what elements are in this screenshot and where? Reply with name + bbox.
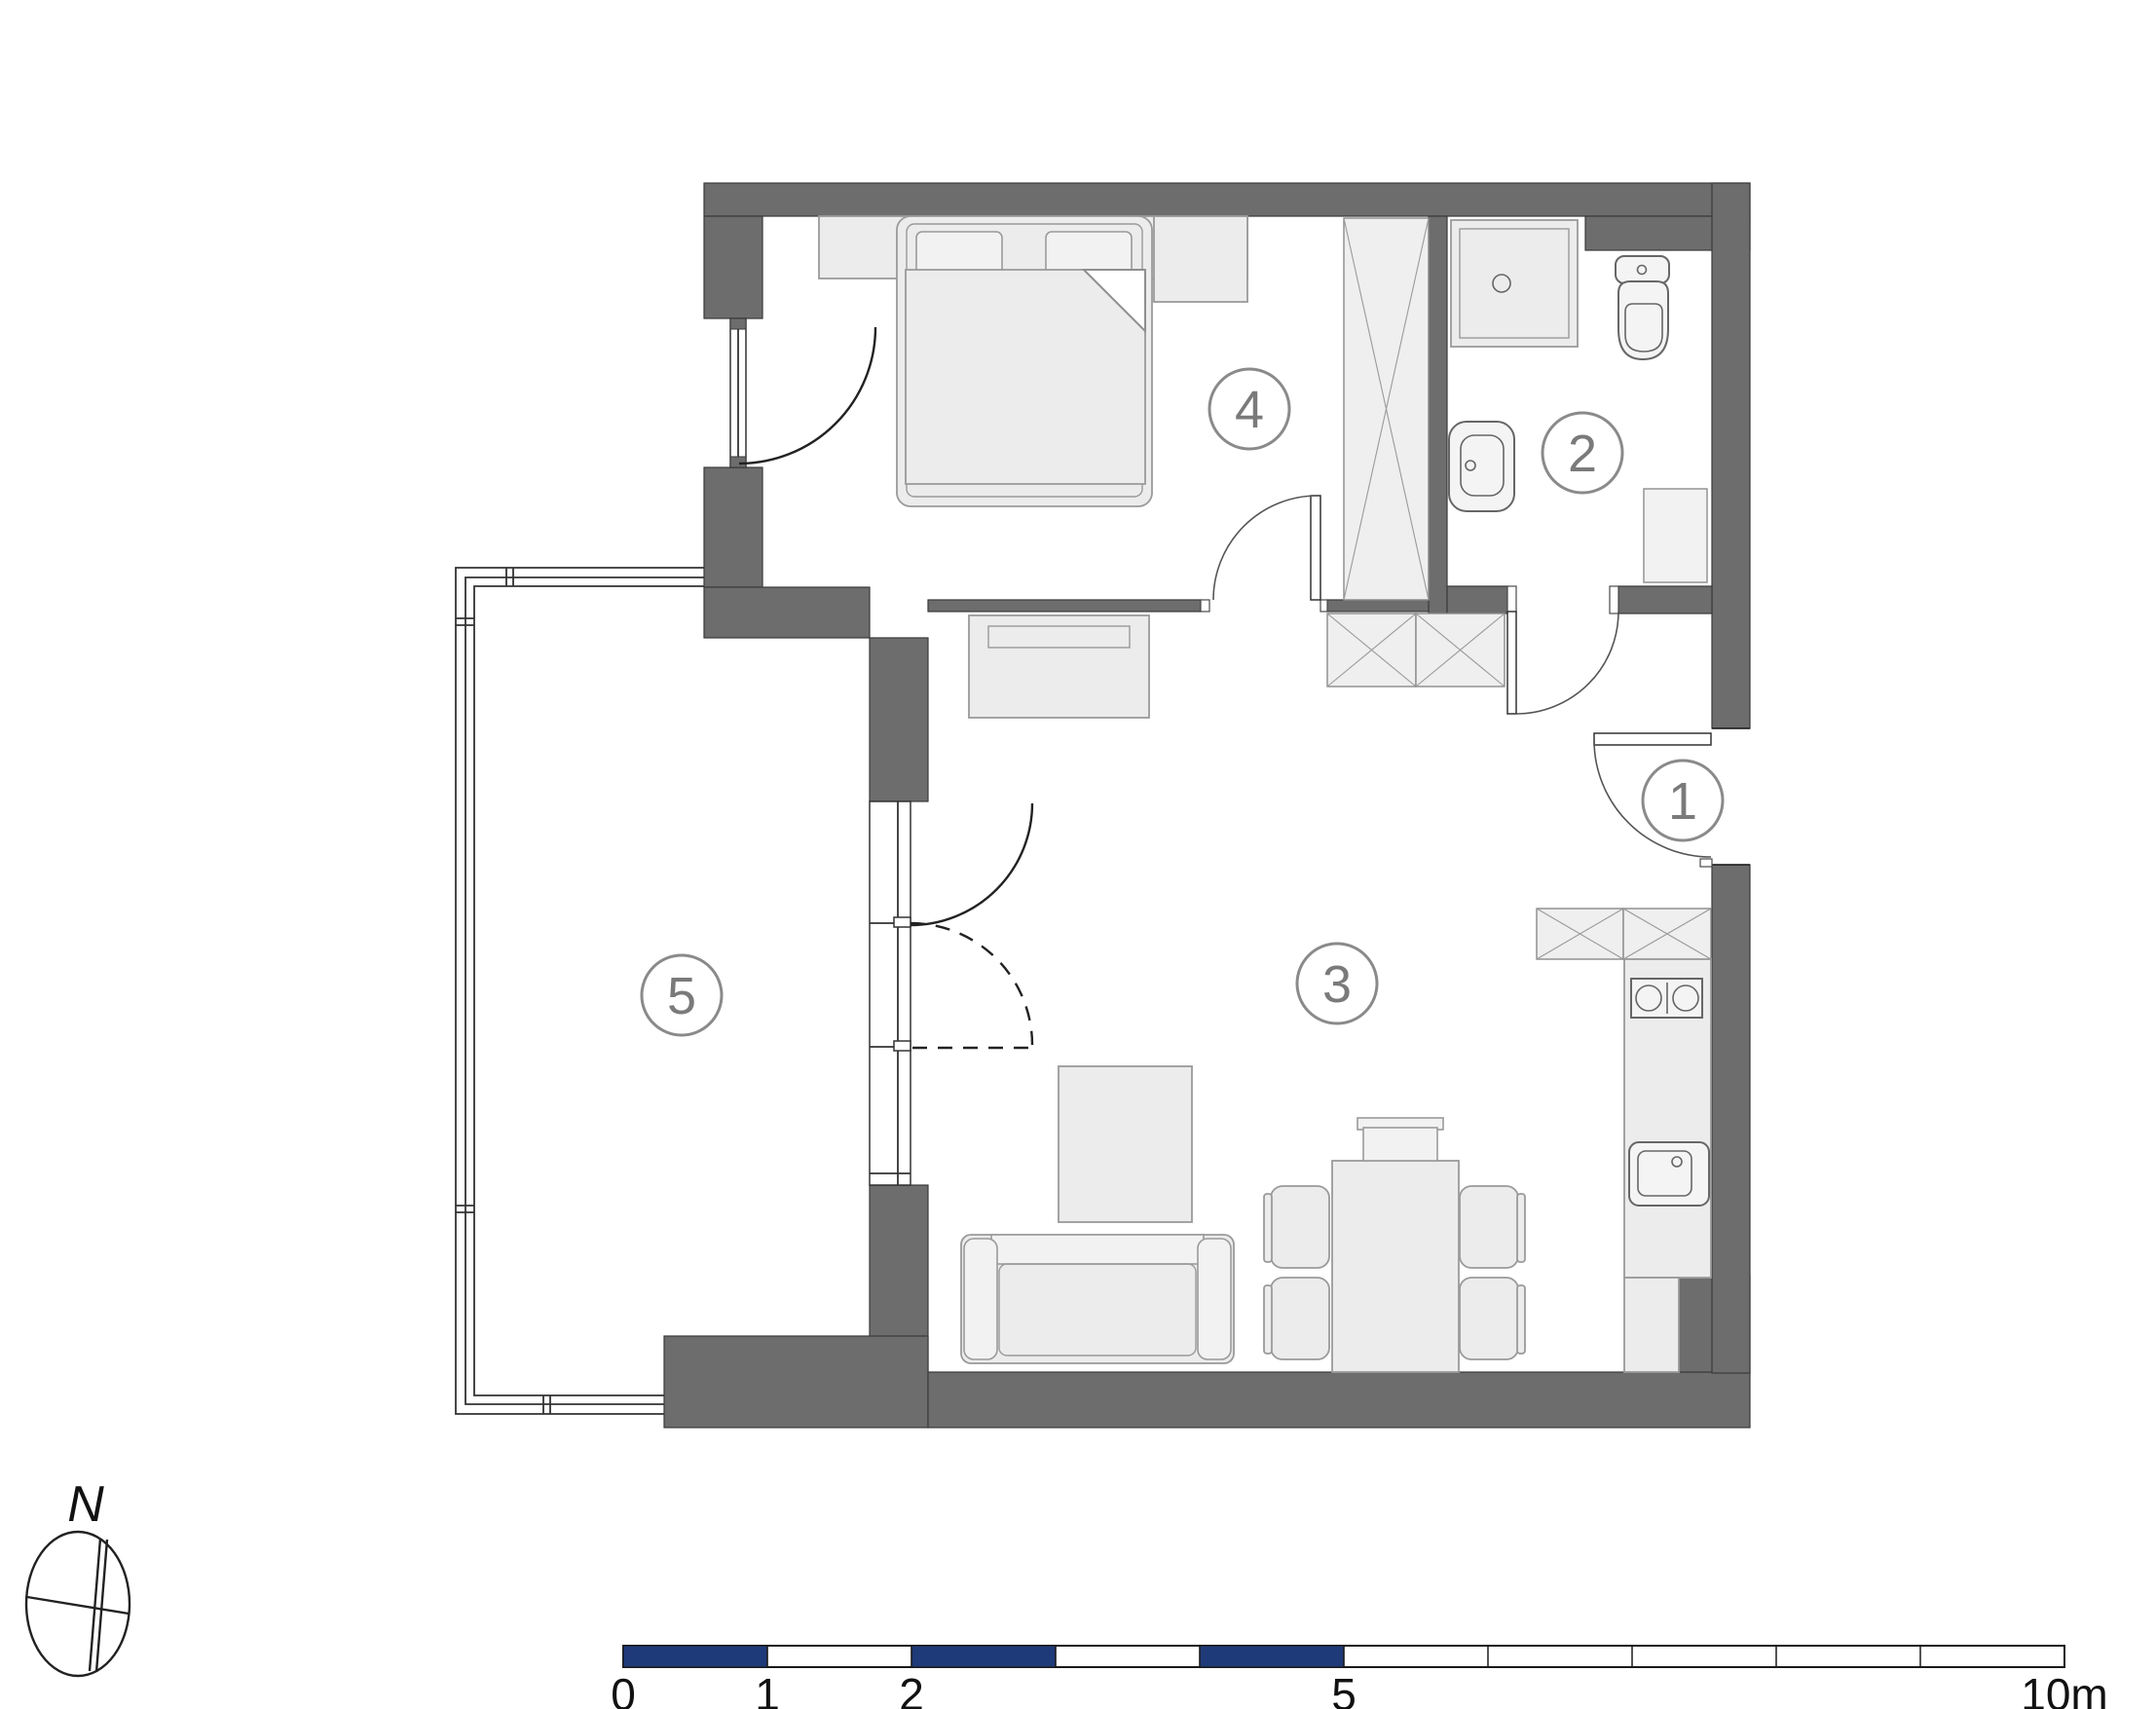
wall-left-upper xyxy=(704,216,762,318)
bedroom-hall-door xyxy=(1213,496,1320,600)
floor-plan-page: 1 2 3 4 5 N xyxy=(0,0,2156,1709)
room-label-5-text: 5 xyxy=(667,967,696,1025)
scale-bar: 0 1 2 5 10m xyxy=(611,1646,2108,1709)
balcony-door-frame xyxy=(870,801,911,1185)
sofa xyxy=(961,1235,1234,1363)
wall-left-below-door xyxy=(704,467,762,587)
compass: N xyxy=(26,1476,130,1676)
sofa-back xyxy=(991,1235,1204,1264)
entrance-door-stop xyxy=(1700,859,1712,867)
floor-plan: 1 2 3 4 5 N xyxy=(0,0,2156,1709)
wall-right-upper xyxy=(1712,183,1750,728)
room-label-4-text: 4 xyxy=(1235,381,1264,439)
room-label-5: 5 xyxy=(642,955,722,1035)
entrance-door-leaf xyxy=(1594,733,1711,745)
compass-circle xyxy=(26,1532,130,1676)
headboard-strip-right xyxy=(1154,216,1247,302)
room-label-4: 4 xyxy=(1209,369,1289,449)
wall-living-left-upper xyxy=(870,638,928,801)
chair-right-top xyxy=(1460,1186,1518,1268)
toilet-tank xyxy=(1616,256,1669,283)
room-label-3: 3 xyxy=(1297,944,1377,1023)
wall-bathroom-bottom-right xyxy=(1618,586,1712,613)
bedroom-entry-hinge-block-top xyxy=(730,318,746,329)
wall-wardrobe-bathroom xyxy=(1429,216,1447,613)
sofa-armrest-left xyxy=(964,1239,997,1359)
balcony-door-swing-dashed xyxy=(911,923,1032,1045)
room-label-1: 1 xyxy=(1643,761,1723,840)
room-label-3-text: 3 xyxy=(1322,955,1352,1014)
chair-right-bottom-back xyxy=(1517,1285,1525,1354)
kitchen-upper-cabinets xyxy=(1537,909,1711,959)
sideboard xyxy=(969,615,1149,718)
scale-segment-0-1 xyxy=(623,1646,767,1667)
hall-closet xyxy=(1327,613,1505,687)
chair-left-top xyxy=(1271,1186,1329,1268)
chair-right-top-back xyxy=(1517,1194,1525,1262)
bedroom-entry-door-swing xyxy=(739,327,875,464)
balcony-door-swing-solid xyxy=(911,803,1032,925)
scale-label-10m: 10m xyxy=(2021,1669,2107,1709)
room-label-2: 2 xyxy=(1543,413,1622,493)
cooktop xyxy=(1631,979,1702,1018)
wall-bathroom-bottom-left xyxy=(1447,586,1507,613)
room-label-1-text: 1 xyxy=(1668,772,1697,831)
jamb-bedroom-door-right xyxy=(1320,600,1327,612)
bedroom-entry-door xyxy=(730,318,875,467)
jamb-bathroom-door-left xyxy=(1507,586,1516,613)
washing-machine xyxy=(1644,489,1707,582)
bedroom-furniture xyxy=(819,216,1429,600)
washbasin xyxy=(1449,422,1514,511)
compass-cross-line xyxy=(27,1597,129,1614)
chair-left-bottom xyxy=(1271,1278,1329,1359)
compass-north-label: N xyxy=(67,1476,104,1533)
wall-partition-bedroom-left xyxy=(928,600,1201,612)
dining-set xyxy=(1264,1118,1525,1372)
room-label-2-text: 2 xyxy=(1568,425,1597,483)
living-furniture xyxy=(961,615,1525,1372)
bathroom-door-leaf xyxy=(1507,612,1516,714)
bathroom-fixtures xyxy=(1449,220,1707,582)
jamb-bedroom-door-left xyxy=(1201,600,1209,612)
wardrobe-hatched xyxy=(1344,218,1429,600)
scale-label-2: 2 xyxy=(899,1669,924,1709)
bedroom-hall-door-leaf xyxy=(1311,496,1320,600)
toilet xyxy=(1616,256,1669,359)
kitchen-sink xyxy=(1629,1142,1709,1206)
kitchen-counter-foot xyxy=(1624,1278,1679,1372)
wall-right-lower xyxy=(1712,865,1750,1373)
wall-balcony-junction xyxy=(704,587,870,638)
scale-label-1: 1 xyxy=(755,1669,780,1709)
chair-left-bottom-back xyxy=(1264,1285,1272,1354)
wall-bottom-main xyxy=(928,1372,1750,1428)
scale-segment-2-3 xyxy=(911,1646,1056,1667)
scale-segment-4-5 xyxy=(1200,1646,1344,1667)
wall-top xyxy=(704,183,1750,216)
duvet xyxy=(906,270,1145,484)
chair-left-top-back xyxy=(1264,1194,1272,1262)
dining-table xyxy=(1332,1161,1459,1372)
sofa-armrest-right xyxy=(1198,1239,1231,1359)
bedroom-hall-door-swing xyxy=(1213,496,1318,600)
coffee-table xyxy=(1059,1066,1192,1222)
balcony-door xyxy=(870,801,1032,1185)
chair-right-bottom xyxy=(1460,1278,1518,1359)
bathroom-door xyxy=(1507,612,1618,714)
bathroom-door-swing xyxy=(1516,612,1618,714)
jamb-bathroom-door-right xyxy=(1610,586,1618,613)
scale-label-0: 0 xyxy=(611,1669,636,1709)
shower xyxy=(1451,220,1578,347)
wall-bottom-left-piece xyxy=(664,1336,928,1428)
bedroom-entry-hinge-block-bottom xyxy=(730,457,746,467)
table-decor xyxy=(1363,1128,1437,1161)
scale-label-5: 5 xyxy=(1331,1669,1357,1709)
balcony-door-mullion-2 xyxy=(894,1041,911,1051)
balcony-door-mullion-1 xyxy=(894,917,911,927)
balcony-mullion-ticks xyxy=(456,568,550,1414)
